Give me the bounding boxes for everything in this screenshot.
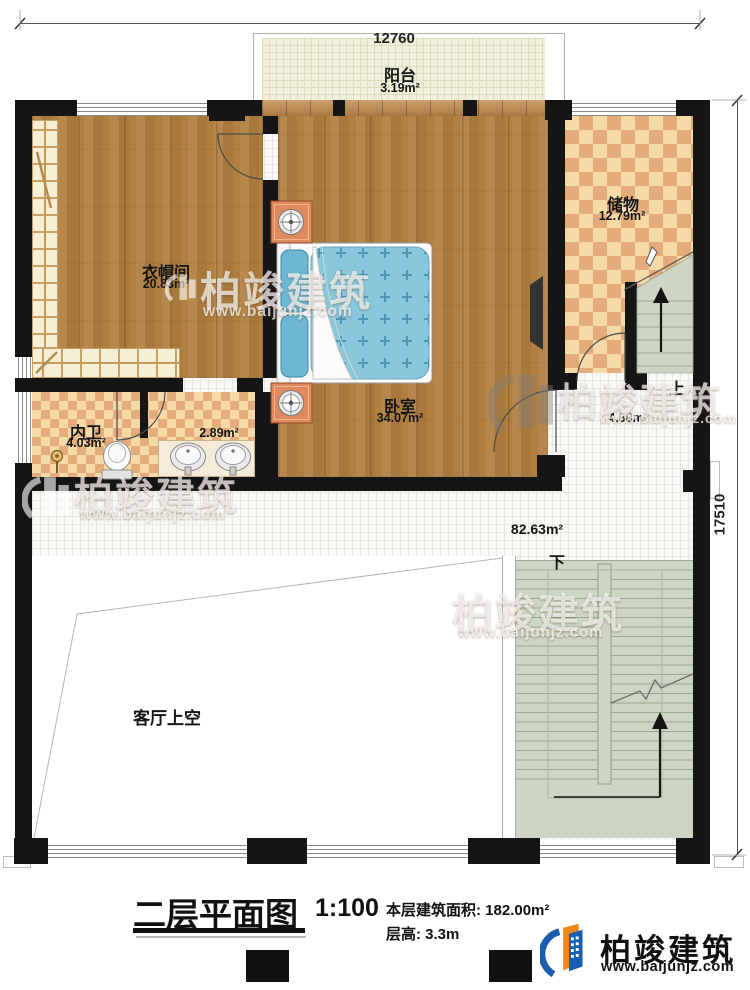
watermark-logo-icon bbox=[488, 363, 560, 448]
watermark-url: www.baijunjz.com bbox=[600, 410, 737, 426]
watermark-url: www.baijunjz.com bbox=[203, 303, 353, 321]
wall-bedroom-door-stub bbox=[537, 455, 565, 477]
window-bottom bbox=[32, 842, 693, 858]
label-stairs-down: 下 bbox=[549, 549, 565, 573]
floor-area-line: 本层建筑面积: 182.00m² bbox=[386, 899, 549, 920]
floor-area-value: 182.00m² bbox=[485, 902, 549, 919]
area-hall: 82.63m² bbox=[511, 521, 563, 537]
door-jamb bbox=[333, 100, 345, 116]
closet-bottom bbox=[32, 348, 180, 378]
window-top-right bbox=[572, 100, 676, 116]
dimension-width: 12760 bbox=[373, 30, 415, 47]
plan-scale: 1:100 bbox=[315, 894, 379, 923]
window-left bbox=[15, 357, 32, 463]
wall-bedroom-storage bbox=[548, 116, 565, 390]
wall-cloakroom-bedroom bbox=[263, 116, 278, 134]
title-underline-thin bbox=[136, 936, 306, 938]
area-bedroom: 34.07m² bbox=[377, 411, 424, 425]
wall-bathroom-stub bbox=[140, 392, 148, 438]
floor-area-label: 本层建筑面积: bbox=[386, 902, 481, 919]
area-storage: 12.79m² bbox=[599, 209, 646, 223]
column bbox=[468, 838, 540, 864]
dimension-line-right bbox=[737, 100, 738, 855]
window-top-left bbox=[77, 100, 207, 116]
wall-bedroom-bottom bbox=[263, 477, 562, 491]
door-jamb bbox=[463, 100, 477, 116]
wall-vanity-right bbox=[255, 392, 278, 477]
dimension-line-top bbox=[20, 23, 700, 24]
column-legend-symbol bbox=[246, 950, 289, 982]
wall-left bbox=[15, 100, 32, 357]
area-vanity: 2.89m² bbox=[199, 426, 239, 440]
column-legend-symbol bbox=[489, 950, 532, 982]
wall-bathroom-top bbox=[15, 378, 183, 392]
brand-url: www.baijunjz.com bbox=[601, 959, 734, 975]
sill bbox=[714, 856, 744, 868]
wall-bathroom-top bbox=[237, 378, 263, 392]
watermark-url: www.baijunjz.com bbox=[458, 624, 603, 641]
area-bathroom: 4.03m² bbox=[66, 436, 106, 450]
dimension-height: 17510 bbox=[712, 485, 729, 545]
floor-height-value: 3.3m bbox=[425, 926, 459, 943]
closet-left bbox=[32, 120, 58, 348]
brand-logo-icon bbox=[540, 920, 598, 987]
floor-height-line: 层高: 3.3m bbox=[386, 923, 459, 944]
column bbox=[676, 838, 710, 864]
watermark-logo-icon bbox=[22, 468, 74, 533]
title-underline bbox=[133, 928, 305, 933]
watermark-logo-icon bbox=[388, 576, 450, 651]
area-balcony: 3.19m² bbox=[380, 81, 420, 95]
floor-plan-canvas: 12760 17510 bbox=[0, 0, 750, 990]
watermark-logo-icon bbox=[165, 268, 199, 313]
label-living-void: 客厅上空 bbox=[133, 704, 201, 729]
watermark-url: www.baijunjz.com bbox=[80, 506, 225, 523]
column bbox=[209, 100, 245, 121]
room-cloakroom bbox=[32, 116, 263, 378]
floor-height-label: 层高: bbox=[386, 926, 421, 943]
column bbox=[14, 838, 48, 864]
column bbox=[247, 838, 307, 864]
balcony-slider-door bbox=[262, 100, 545, 116]
column bbox=[683, 470, 710, 492]
